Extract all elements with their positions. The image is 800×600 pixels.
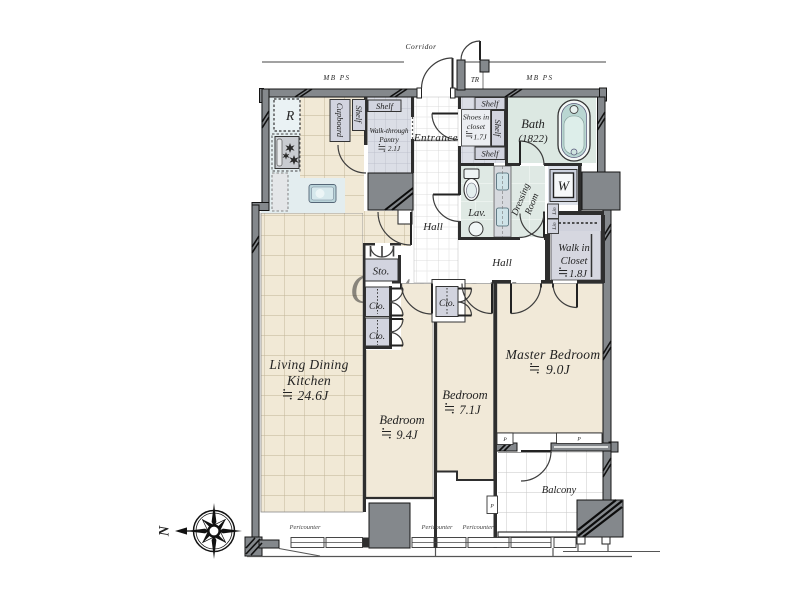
svg-text:7.1J: 7.1J — [459, 403, 482, 417]
svg-text:P: P — [502, 437, 507, 443]
svg-text:Hall: Hall — [491, 257, 512, 269]
svg-text:Entrance: Entrance — [413, 132, 458, 144]
svg-text:Clo.: Clo. — [439, 299, 455, 309]
svg-text:N: N — [157, 525, 173, 537]
svg-text:Pericounter: Pericounter — [288, 524, 321, 531]
svg-text:2.1J: 2.1J — [388, 145, 401, 153]
svg-text:W: W — [558, 179, 571, 194]
svg-text:Closet: Closet — [561, 256, 589, 267]
svg-text:Clo.: Clo. — [369, 332, 385, 342]
svg-text:Shelf: Shelf — [354, 106, 364, 125]
svg-text:Corridor: Corridor — [405, 42, 436, 51]
svg-text:Walk in: Walk in — [558, 243, 589, 254]
svg-text:MB PS: MB PS — [322, 74, 350, 82]
svg-text:Sto.: Sto. — [373, 266, 390, 278]
svg-text:Walk-through: Walk-through — [370, 127, 409, 135]
svg-text:Shelf: Shelf — [493, 120, 503, 139]
svg-text:Shelf: Shelf — [482, 99, 501, 109]
svg-text:P: P — [489, 504, 494, 510]
svg-text:R: R — [285, 108, 295, 123]
svg-text:Lin: Lin — [552, 222, 558, 231]
svg-text:Master Bedroom: Master Bedroom — [505, 347, 601, 362]
svg-text:Lav.: Lav. — [467, 208, 486, 219]
svg-text:Balcony: Balcony — [542, 485, 577, 496]
svg-text:Cupboard: Cupboard — [335, 103, 345, 138]
svg-text:9.0J: 9.0J — [546, 362, 571, 377]
svg-text:9.4J: 9.4J — [396, 428, 419, 442]
svg-text:P: P — [576, 437, 581, 443]
svg-text:(1822): (1822) — [518, 133, 548, 145]
svg-text:Lin: Lin — [552, 207, 558, 216]
svg-text:Bath: Bath — [521, 117, 545, 131]
svg-text:Bedroom: Bedroom — [442, 388, 487, 402]
svg-text:closet: closet — [467, 122, 486, 131]
svg-text:Shelf: Shelf — [376, 101, 395, 111]
svg-text:Pericounter: Pericounter — [461, 524, 494, 531]
svg-text:Kitchen: Kitchen — [286, 373, 331, 388]
svg-text:Pericounter: Pericounter — [420, 524, 453, 531]
svg-text:1.7J: 1.7J — [473, 133, 487, 142]
svg-text:Shoes in: Shoes in — [463, 113, 489, 122]
svg-text:Living Dining: Living Dining — [268, 357, 348, 372]
svg-text:Hall: Hall — [422, 221, 443, 233]
svg-text:Bedroom: Bedroom — [379, 413, 424, 427]
svg-text:TR: TR — [471, 76, 480, 84]
svg-text:Pantry: Pantry — [378, 136, 399, 144]
svg-text:1.8J: 1.8J — [569, 269, 588, 280]
svg-text:24.6J: 24.6J — [297, 388, 329, 403]
svg-text:Clo.: Clo. — [369, 302, 385, 312]
svg-text:MB PS: MB PS — [525, 74, 553, 82]
svg-text:Shelf: Shelf — [482, 149, 501, 159]
